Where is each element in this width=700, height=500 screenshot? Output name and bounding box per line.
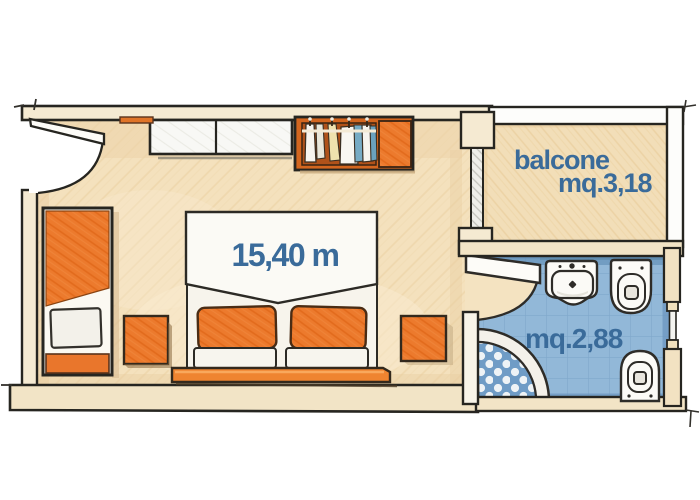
svg-text:15,40 m: 15,40 m — [232, 237, 339, 273]
svg-text:mq.2,88: mq.2,88 — [525, 323, 623, 354]
svg-text:mq.3,18: mq.3,18 — [558, 168, 653, 198]
